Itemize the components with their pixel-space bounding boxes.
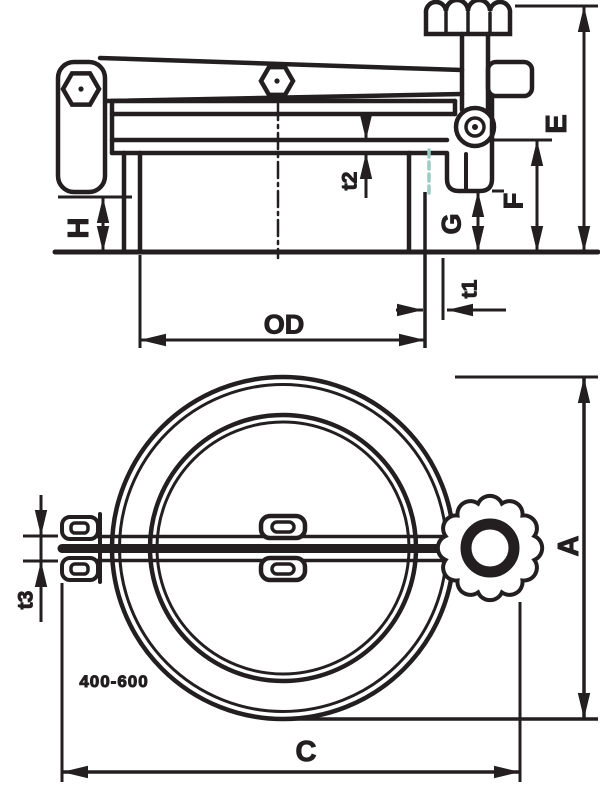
plan-view <box>62 377 542 719</box>
cover-flange <box>112 140 447 153</box>
dim-label-t3: t3 <box>14 591 37 610</box>
handwheel-plan <box>438 496 542 600</box>
clamp-pivot <box>456 108 494 146</box>
dim-label-A: A <box>553 535 585 556</box>
cover-upper-plate <box>112 101 455 153</box>
technical-drawing-page: E F G H t2 t1 OD <box>0 0 600 786</box>
dim-label-t2: t2 <box>338 172 361 191</box>
dim-label-G: G <box>436 213 466 234</box>
clamp-bracket <box>488 62 532 96</box>
size-range-note: 400-600 <box>79 672 148 691</box>
dim-label-E: E <box>541 114 573 133</box>
dim-label-t1: t1 <box>458 279 481 298</box>
hinge-pivot-bolt <box>63 73 99 104</box>
dim-label-C: C <box>296 736 317 768</box>
screw-stem <box>462 34 488 110</box>
dim-label-OD: OD <box>264 309 305 339</box>
dim-label-F: F <box>498 193 528 210</box>
side-view <box>55 0 598 258</box>
dim-label-H: H <box>63 218 95 239</box>
center-pivot-bolt <box>261 67 293 95</box>
handwheel-side <box>426 0 510 34</box>
manway-drawing: E F G H t2 t1 OD <box>0 0 600 786</box>
